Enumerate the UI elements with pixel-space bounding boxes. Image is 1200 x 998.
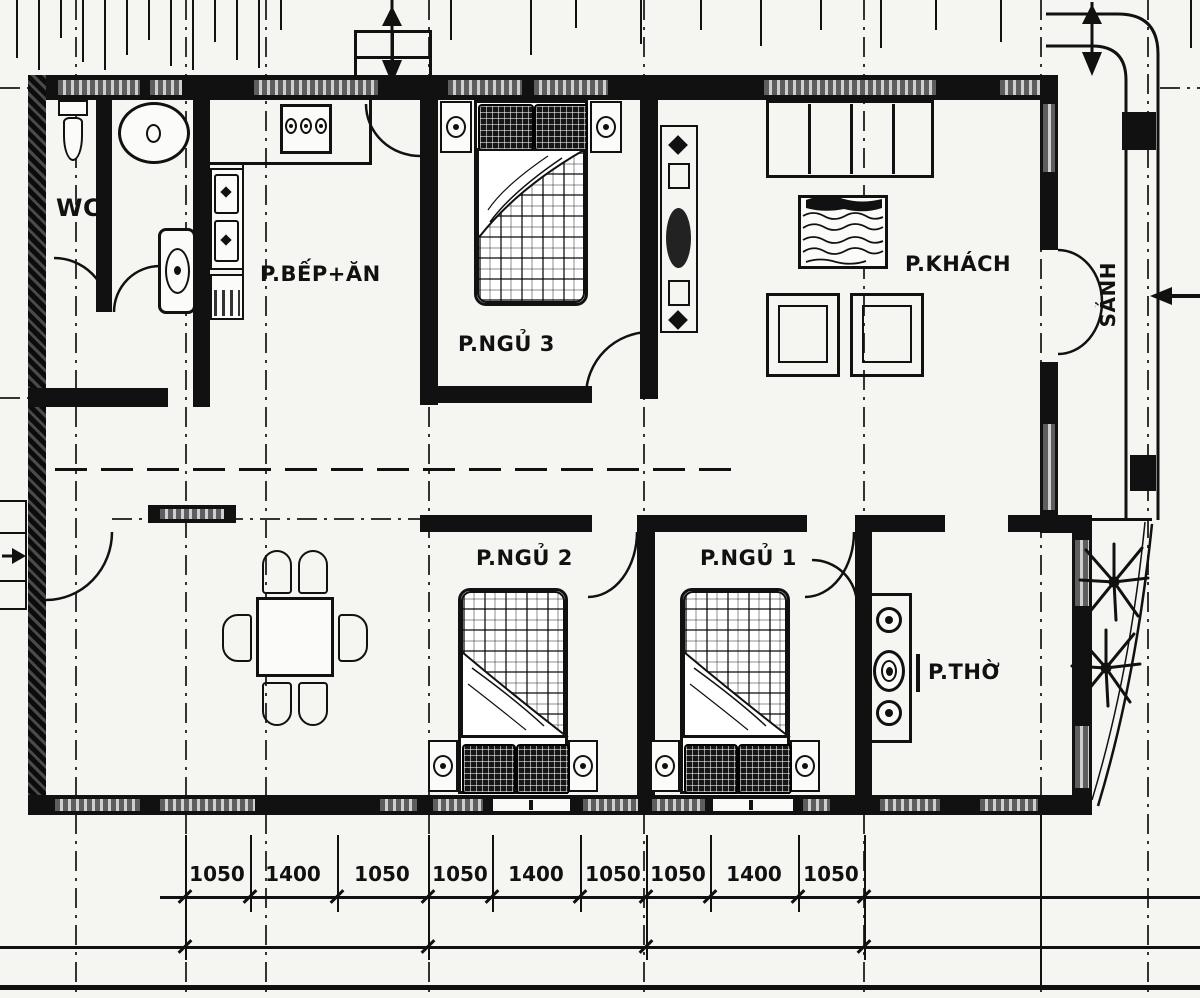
sofa-divider — [808, 104, 811, 174]
bedroom2-top-wall — [420, 515, 592, 532]
border-line — [0, 985, 1200, 990]
window-segment — [880, 799, 940, 811]
window-segment — [803, 799, 830, 811]
grid-line — [0, 397, 28, 399]
extension-line — [864, 835, 866, 912]
pillow-icon — [516, 744, 570, 794]
window-segment — [980, 799, 1038, 811]
porch-column — [1130, 455, 1156, 491]
burner-dot — [319, 124, 323, 128]
sofa-divider — [892, 104, 895, 174]
altar-dot — [886, 667, 893, 676]
blanket — [683, 591, 787, 738]
candle-icon — [916, 654, 920, 692]
grid-line — [1160, 87, 1200, 89]
extension-line — [250, 835, 252, 912]
armchair-seat — [862, 305, 912, 363]
window-segment — [1075, 540, 1089, 606]
extension-line — [710, 835, 712, 912]
window-segment — [448, 80, 522, 95]
extension-line — [798, 835, 800, 912]
pillow-icon — [534, 104, 588, 151]
room-label-bedroom3: P.NGỦ 3 — [458, 332, 555, 356]
room-label-bedroom1: P.NGỦ 1 — [700, 546, 797, 570]
grid-line — [265, 0, 267, 998]
chair-icon — [298, 550, 328, 594]
window-segment — [55, 799, 140, 811]
dimension-value: 1050 — [346, 862, 418, 886]
step-line — [354, 56, 432, 59]
dimension-line — [160, 896, 1200, 899]
extension-line — [428, 835, 430, 912]
lamp-dot — [453, 124, 459, 130]
extension-line — [492, 835, 494, 912]
room-label-kitchen: P.BẾP+ĂN — [260, 262, 381, 286]
room-label-wc: WC — [56, 194, 101, 222]
dimension-value: 1050 — [795, 862, 867, 886]
bedroom3-left-wall — [420, 75, 438, 405]
decor-box — [668, 280, 690, 306]
dimension-value: 1050 — [181, 862, 253, 886]
window-segment — [652, 799, 705, 811]
window-segment — [583, 799, 638, 811]
extension-line — [185, 835, 187, 912]
hall-entry-arrow-icon — [1150, 287, 1200, 305]
toilet-icon — [58, 100, 88, 116]
wc-bottom-wall — [28, 388, 168, 407]
window — [713, 797, 793, 813]
extension-line — [646, 835, 648, 912]
chair-icon — [262, 682, 292, 726]
window-segment — [1000, 80, 1040, 95]
washer-knob — [174, 266, 181, 275]
window-segment — [150, 80, 182, 95]
toilet-icon — [63, 117, 83, 161]
floor-plan: WC P.BẾP+ĂN P.NGỦ 3 P.KHÁCH SẢNH P.NGỦ 2… — [0, 0, 1200, 998]
extension-line — [646, 912, 648, 960]
extension-line — [1040, 815, 1042, 985]
dimension-value: 1050 — [577, 862, 649, 886]
bedroom3-right-wall — [640, 75, 658, 399]
altar-dot — [885, 709, 893, 717]
bedroom3-bottom-wall — [420, 386, 592, 403]
window-segment — [1043, 104, 1055, 172]
ramp-arrow-icon — [1082, 2, 1102, 76]
step-line — [0, 500, 27, 502]
chair-icon — [222, 614, 252, 662]
step-edge — [25, 500, 27, 610]
sofa-divider — [850, 104, 853, 174]
window-segment — [160, 799, 255, 811]
extension-line — [580, 835, 582, 912]
fridge-vents — [214, 290, 240, 316]
room-label-bedroom2: P.NGỦ 2 — [476, 546, 573, 570]
burner-dot — [289, 124, 293, 128]
bedroom1-top-wall — [650, 515, 807, 532]
dimension-value: 1050 — [642, 862, 714, 886]
pillow-icon — [738, 744, 792, 794]
extension-line — [864, 912, 866, 960]
window-segment — [380, 799, 417, 811]
burner-dot — [304, 124, 308, 128]
window-segment — [254, 80, 378, 95]
room-label-hall: SẢNH — [1096, 262, 1120, 327]
dimension-value: 1050 — [424, 862, 496, 886]
window-mullion — [749, 800, 753, 810]
window-segment — [1075, 726, 1089, 788]
window-segment — [534, 80, 608, 95]
room-label-living: P.KHÁCH — [905, 252, 1011, 276]
dimension-value: 1400 — [500, 862, 572, 886]
grid-line — [0, 87, 28, 89]
lamp-dot — [662, 763, 668, 769]
counter-edge — [369, 100, 372, 165]
chair-icon — [298, 682, 328, 726]
extension-line — [337, 835, 339, 912]
dimension-value: 1400 — [718, 862, 790, 886]
chair-icon — [262, 550, 292, 594]
room-label-worship: P.THỜ — [928, 660, 1000, 684]
worship-top-wall — [1008, 515, 1092, 532]
window-segment — [433, 799, 483, 811]
step-line — [0, 608, 27, 610]
porch-column — [1122, 112, 1156, 150]
chair-icon — [338, 614, 368, 662]
dining-table-icon — [256, 597, 334, 677]
lamp-dot — [580, 763, 586, 769]
garden-curve — [1092, 522, 1152, 806]
pillow-icon — [684, 744, 738, 794]
altar-dot — [885, 616, 893, 624]
sink-drain — [146, 124, 161, 143]
armchair-seat — [778, 305, 828, 363]
side-entry-arrow-icon — [2, 548, 26, 564]
pillow-icon — [462, 744, 516, 794]
window-segment — [160, 509, 224, 519]
coffee-table-icon — [798, 195, 888, 269]
extension-line — [428, 912, 430, 960]
window-segment — [1043, 424, 1055, 510]
lamp-dot — [802, 763, 808, 769]
porch-edge — [1092, 518, 1152, 521]
window-mullion — [529, 800, 533, 810]
overhang-dashed-line — [55, 468, 745, 471]
window-segment — [764, 80, 936, 95]
blanket — [477, 148, 585, 303]
window-segment — [58, 80, 140, 95]
blanket — [461, 591, 565, 738]
dimension-value: 1400 — [257, 862, 329, 886]
extension-line — [185, 912, 187, 960]
step-line — [0, 532, 27, 534]
counter-edge — [210, 162, 372, 165]
step-line — [0, 580, 27, 582]
decor-box — [668, 163, 690, 189]
lamp-dot — [440, 763, 446, 769]
tv-icon — [666, 208, 691, 268]
lamp-dot — [603, 124, 609, 130]
left-wall — [28, 75, 46, 815]
pillow-icon — [478, 104, 534, 151]
